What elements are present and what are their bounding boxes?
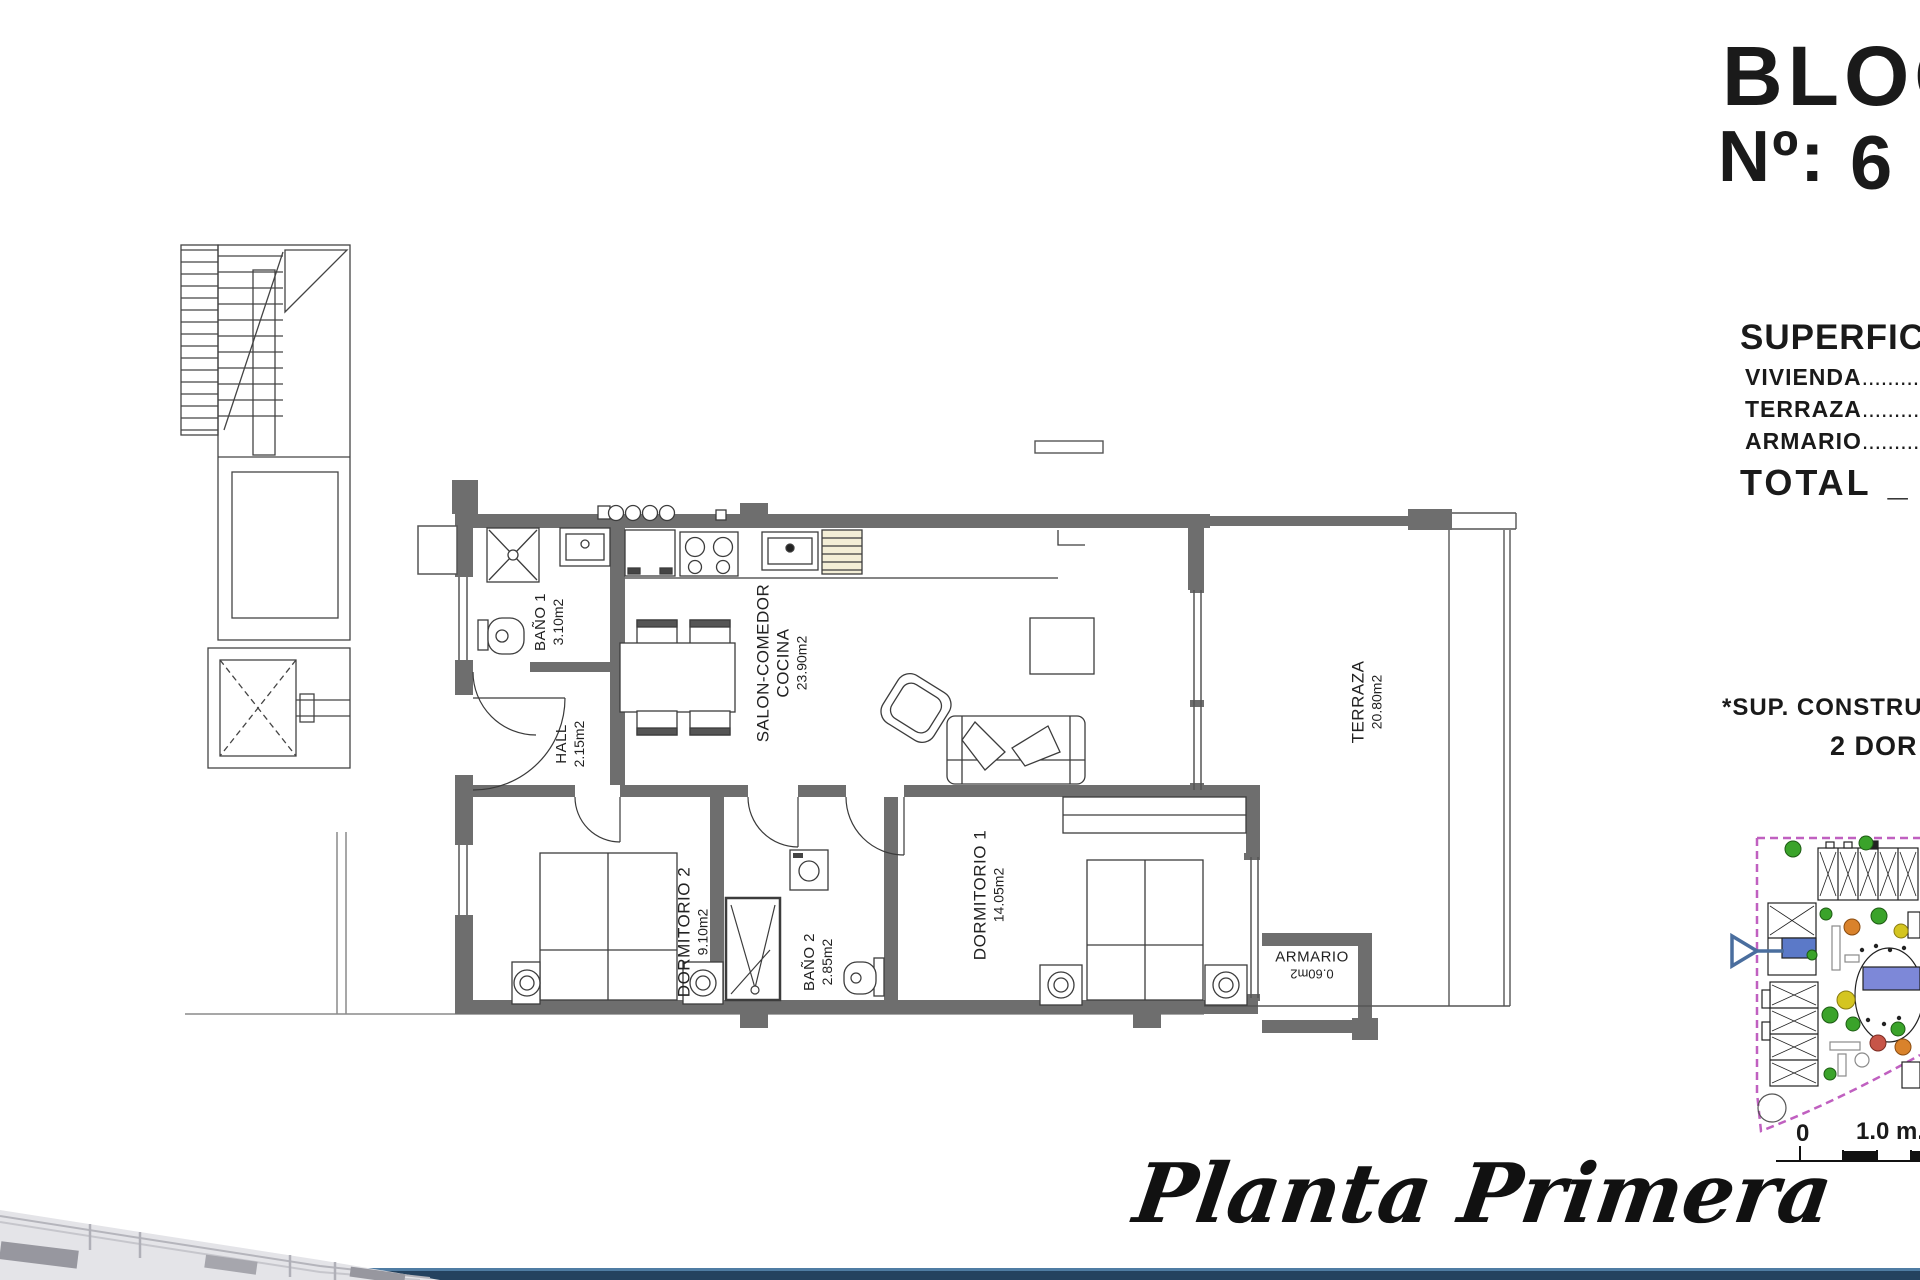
block-number-value: 6: [1850, 120, 1892, 207]
superficie-row-terraza: TERRAZA.................................…: [1745, 396, 1920, 423]
elevator-drawing: [208, 648, 350, 768]
room-label-hall: HALL 2.15m2: [553, 721, 587, 768]
room-label-terraza: TERRAZA 20.80m2: [1349, 661, 1386, 744]
bedroom-count-note: 2 DOR: [1830, 731, 1918, 762]
scale-unit-label: 1.0 m.: [1856, 1118, 1920, 1146]
block-title: BLOC: [1722, 28, 1920, 125]
site-plan: [1732, 836, 1920, 1161]
plan-linework: [0, 0, 1920, 1280]
scale-zero-label: 0: [1796, 1120, 1809, 1148]
bedroom1-furniture: [1040, 797, 1247, 1005]
room-label-bano1: BAÑO 1 3.10m2: [532, 593, 566, 651]
total-row: TOTAL_8: [1740, 462, 1920, 504]
room-label-dormitorio1: DORMITORIO 1 14.05m2: [971, 830, 1008, 960]
room-label-bano2: BAÑO 2 2.85m2: [801, 933, 835, 991]
room-label-dormitorio2: DORMITORIO 2 9.10m2: [675, 867, 712, 997]
superficie-row-armario: ARMARIO.................................…: [1745, 428, 1920, 455]
living-furniture: [620, 618, 1094, 784]
block-number-label: Nº:: [1718, 116, 1826, 198]
sheet-caption: Planta Primera: [1128, 1146, 1691, 1242]
superficie-heading: SUPERFICIE: [1740, 318, 1920, 358]
constructed-surfaces-note: *SUP. CONSTRUIDAS: [1722, 694, 1920, 722]
staircase-drawing: [181, 245, 350, 640]
superficie-row-vivienda: VIVIENDA................................…: [1745, 364, 1920, 391]
floor-plan-sheet: BLOC Nº: 6 SUPERFICIE VIVIENDA..........…: [0, 0, 1920, 1280]
room-label-armario: ARMARIO 0.60m2: [1275, 949, 1349, 984]
room-label-salon: SALON-COMEDOR COCINA 23.90m2: [754, 584, 811, 743]
